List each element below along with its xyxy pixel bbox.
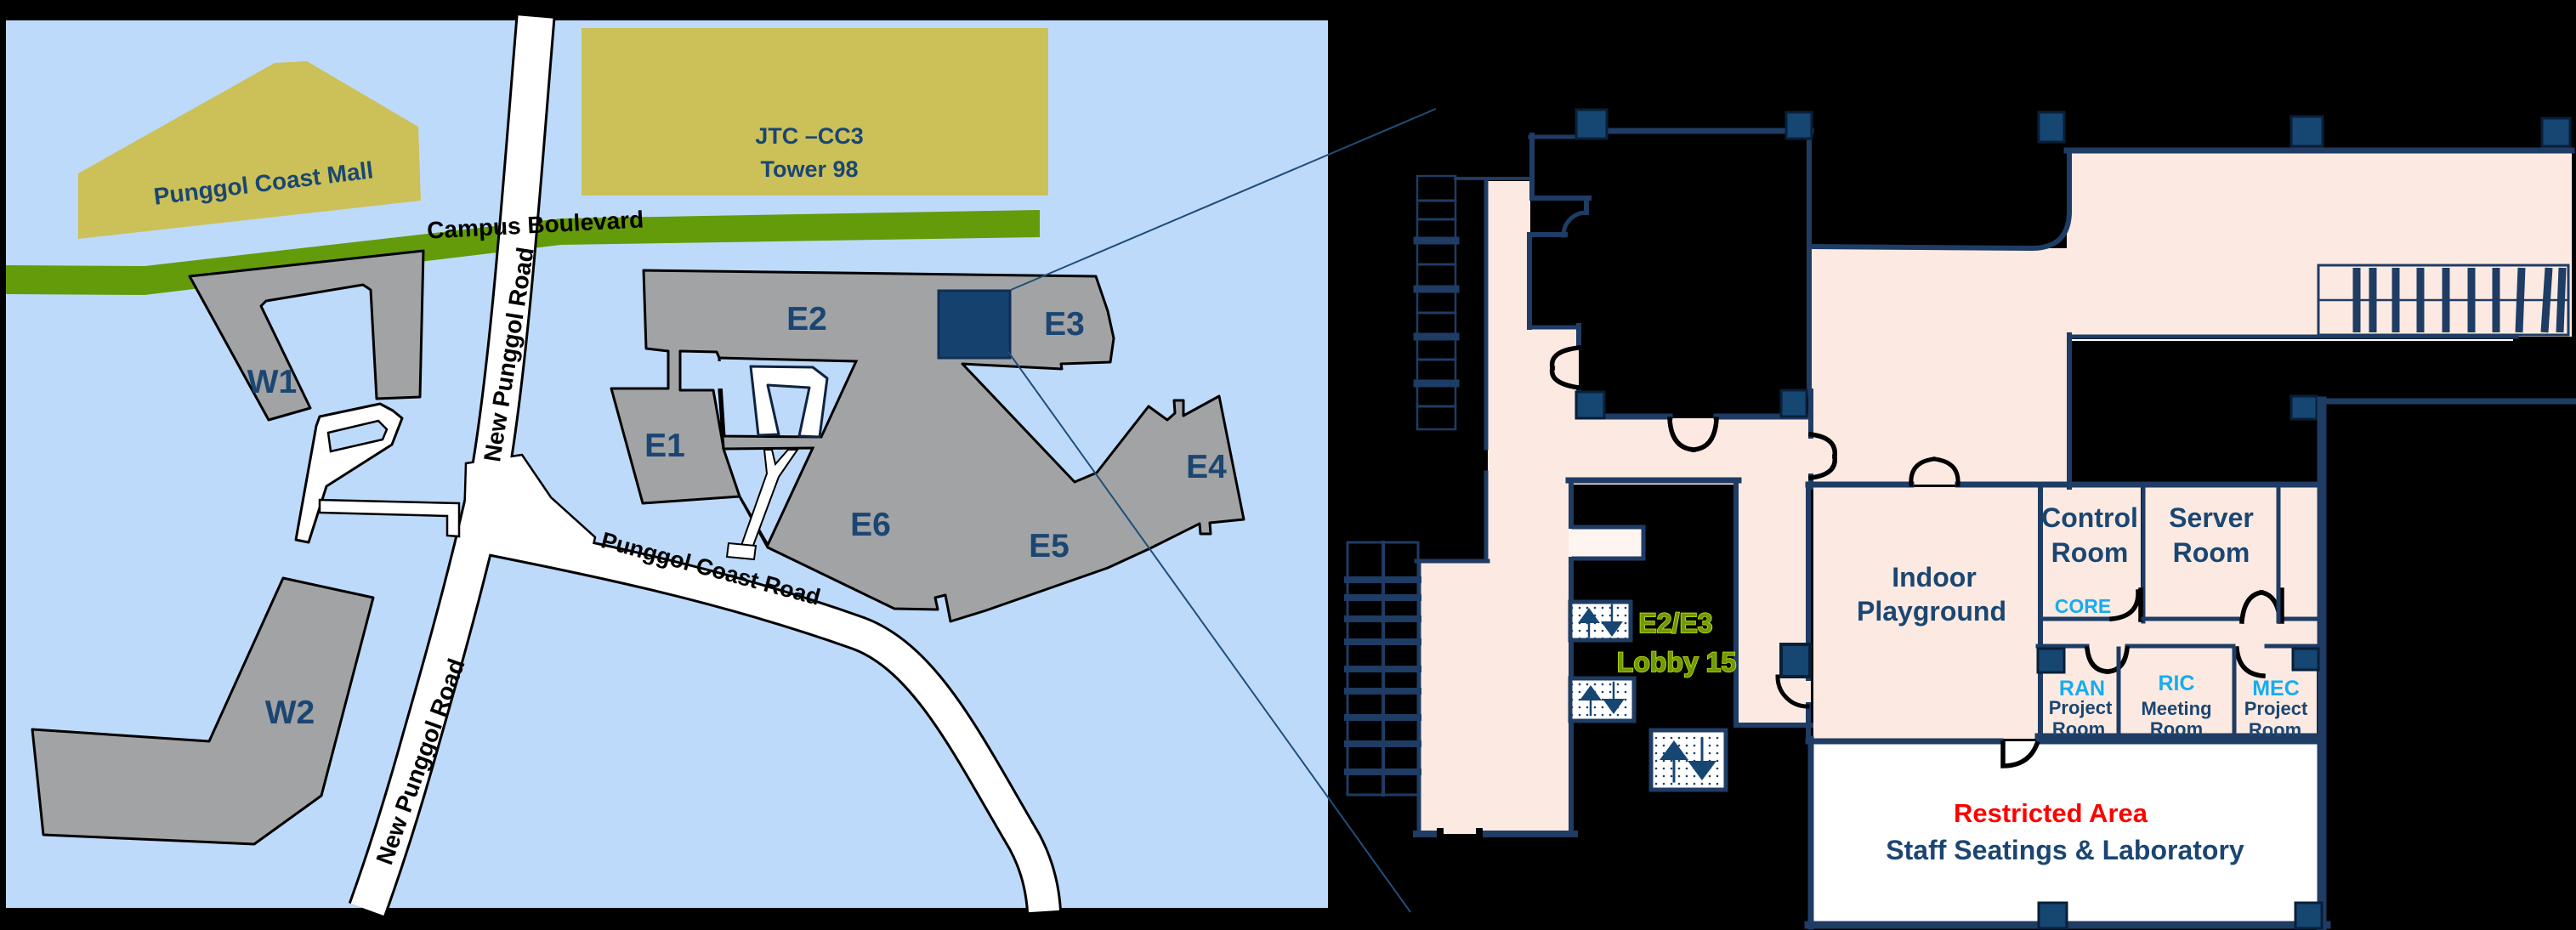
svg-text:W1: W1 <box>247 364 298 400</box>
svg-text:Staff Seatings & Laboratory: Staff Seatings & Laboratory <box>1886 835 2244 865</box>
svg-text:Room: Room <box>2249 719 2301 740</box>
svg-text:CORE: CORE <box>2055 595 2111 617</box>
svg-text:Room: Room <box>2052 718 2105 740</box>
svg-text:Control: Control <box>2041 502 2138 533</box>
svg-text:Room: Room <box>2051 537 2129 568</box>
svg-text:JTC –CC3: JTC –CC3 <box>755 123 864 149</box>
svg-text:W2: W2 <box>265 695 315 731</box>
svg-text:E2/E3: E2/E3 <box>1638 608 1712 638</box>
svg-text:Server: Server <box>2169 502 2254 533</box>
svg-text:E6: E6 <box>850 507 891 543</box>
svg-text:Indoor: Indoor <box>1892 562 1977 593</box>
svg-text:RIC: RIC <box>2158 672 2194 695</box>
svg-text:Project: Project <box>2244 698 2308 719</box>
svg-text:Restricted Area: Restricted Area <box>1954 798 2148 828</box>
svg-text:Room: Room <box>2173 537 2250 568</box>
svg-text:Playground: Playground <box>1857 596 2006 627</box>
svg-text:MEC: MEC <box>2252 677 2300 700</box>
svg-text:E1: E1 <box>644 428 685 464</box>
svg-text:E5: E5 <box>1029 528 1070 564</box>
svg-text:Room: Room <box>2150 718 2203 740</box>
svg-text:Tower 98: Tower 98 <box>760 156 858 182</box>
svg-text:Meeting: Meeting <box>2141 698 2211 719</box>
svg-text:E2: E2 <box>786 301 827 337</box>
svg-text:Project: Project <box>2049 697 2113 718</box>
svg-text:E3: E3 <box>1044 306 1085 343</box>
svg-text:E4: E4 <box>1186 449 1227 485</box>
svg-text:Lobby 15: Lobby 15 <box>1617 647 1736 678</box>
